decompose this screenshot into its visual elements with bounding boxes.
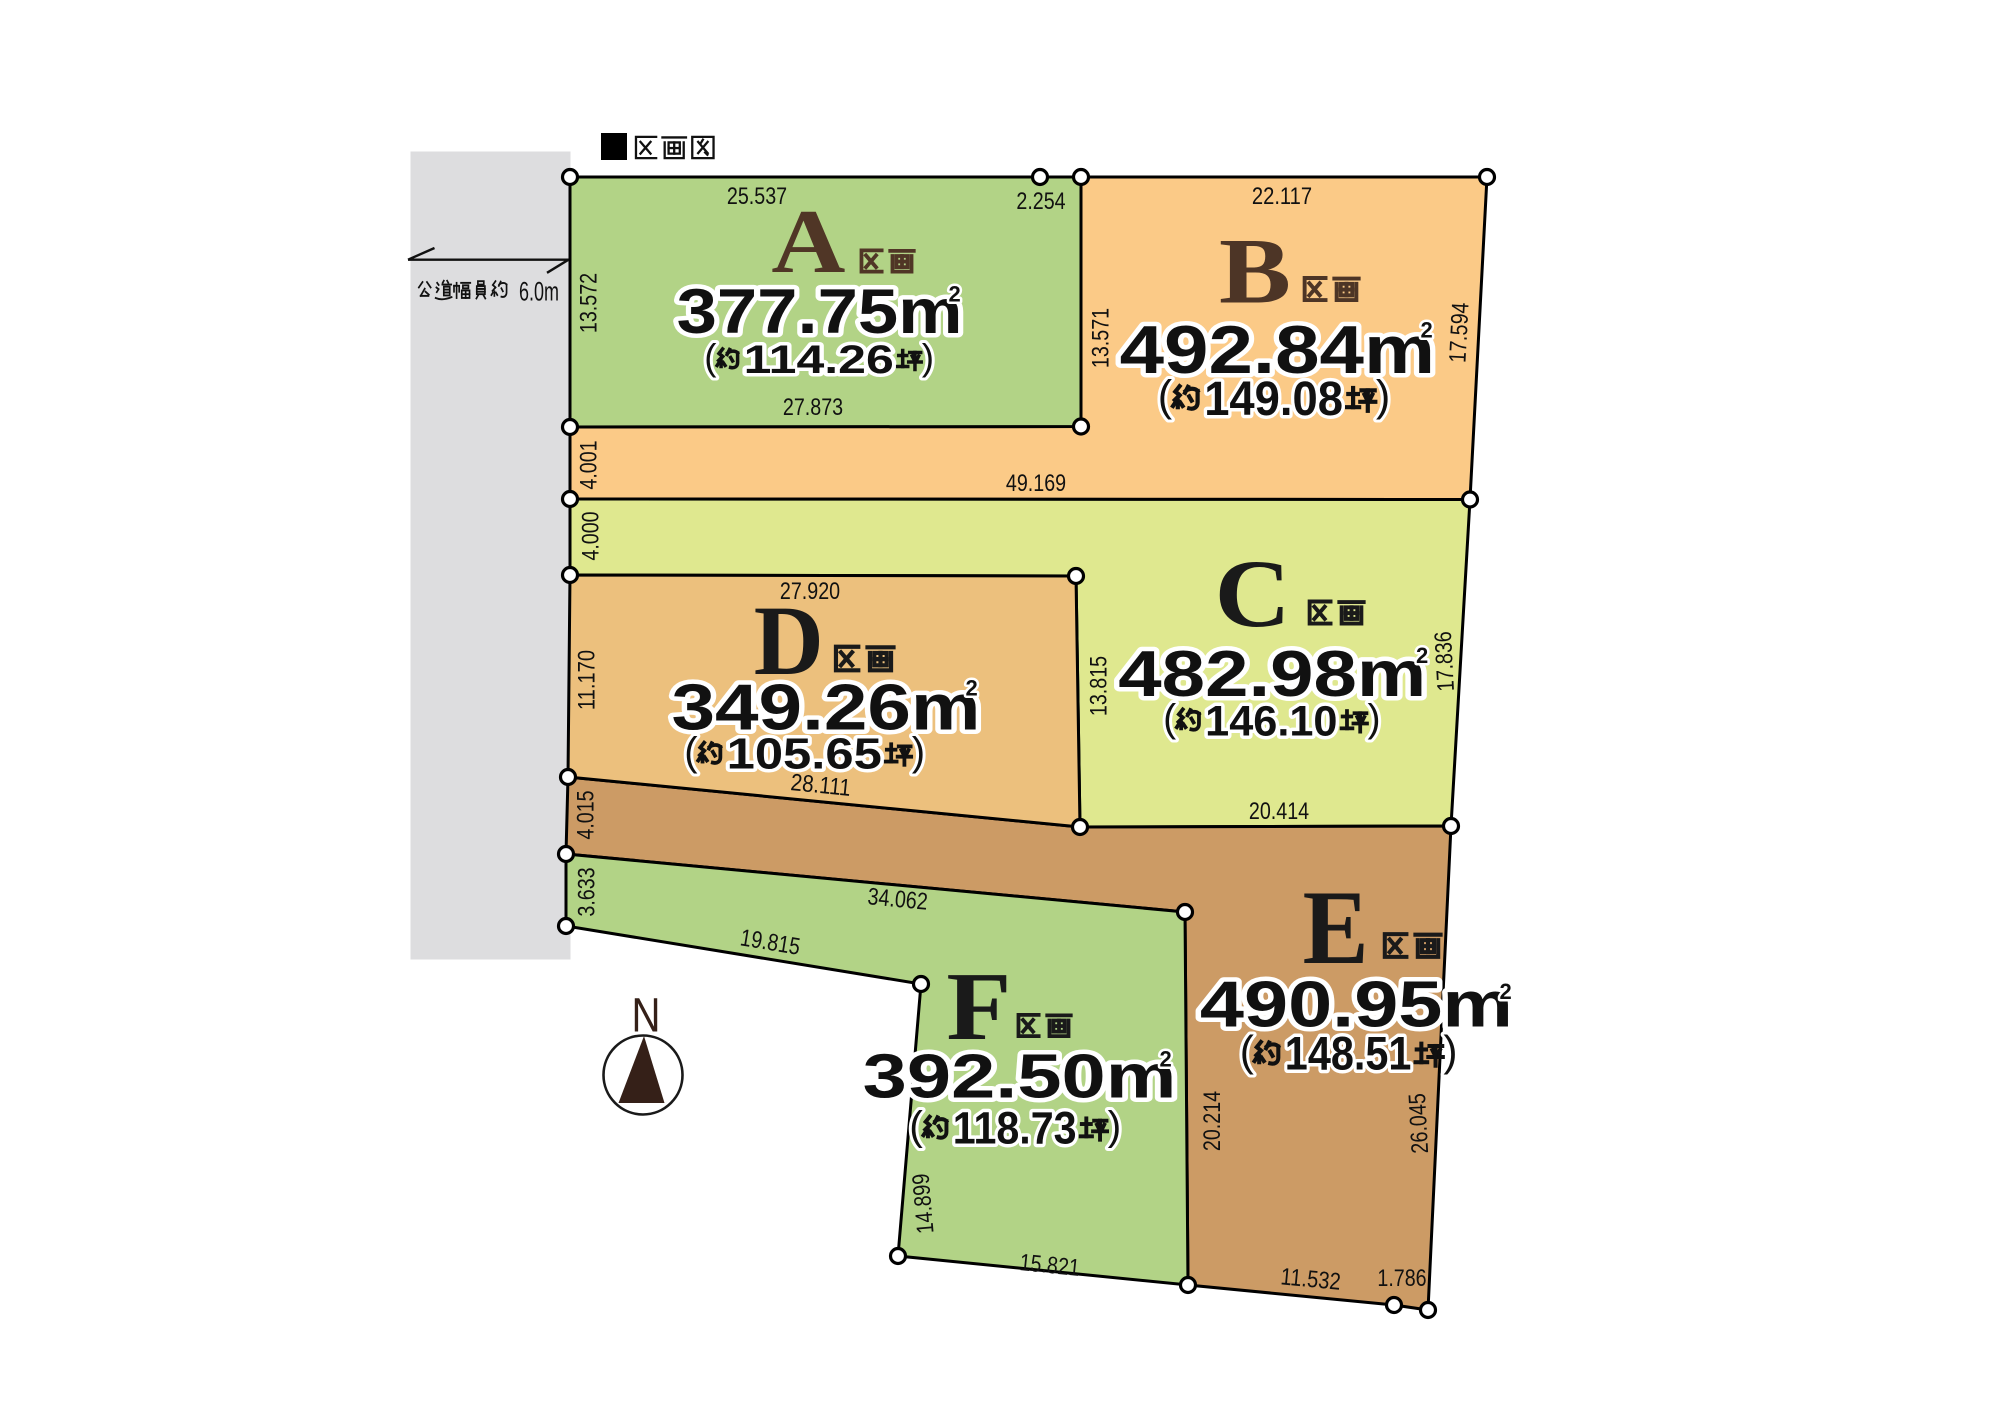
svg-text:105.65: 105.65 xyxy=(727,730,882,779)
svg-text:4.000: 4.000 xyxy=(578,511,605,560)
svg-text:(: ( xyxy=(704,337,717,378)
svg-text:20.414: 20.414 xyxy=(1249,798,1309,825)
svg-text:13.815: 13.815 xyxy=(1086,656,1113,716)
svg-text:B: B xyxy=(1219,221,1291,324)
svg-text:2: 2 xyxy=(966,676,978,701)
svg-text:2: 2 xyxy=(1421,318,1433,343)
svg-text:(: ( xyxy=(1240,1028,1254,1075)
svg-text:(: ( xyxy=(684,730,698,774)
svg-text:114.26: 114.26 xyxy=(744,338,894,382)
svg-text:(: ( xyxy=(909,1103,923,1149)
svg-text:377.75m: 377.75m xyxy=(677,277,963,347)
svg-text:34.062: 34.062 xyxy=(866,883,928,916)
svg-text:118.73: 118.73 xyxy=(953,1103,1077,1154)
svg-text:13.572: 13.572 xyxy=(576,273,603,333)
svg-text:3.633: 3.633 xyxy=(574,867,601,916)
svg-text:): ) xyxy=(1376,373,1390,421)
svg-text:15.821: 15.821 xyxy=(1018,1249,1081,1282)
svg-text:17.594: 17.594 xyxy=(1444,302,1474,364)
svg-text:2: 2 xyxy=(1416,643,1428,668)
svg-text:2: 2 xyxy=(949,282,961,307)
svg-text:27.873: 27.873 xyxy=(783,394,843,421)
svg-text:146.10: 146.10 xyxy=(1205,697,1337,745)
svg-text:2: 2 xyxy=(1160,1047,1172,1072)
svg-text:4.015: 4.015 xyxy=(573,790,600,839)
svg-text:): ) xyxy=(922,337,934,378)
svg-text:C: C xyxy=(1215,540,1291,647)
svg-text:(: ( xyxy=(1158,373,1173,421)
svg-text:11.170: 11.170 xyxy=(574,650,601,710)
svg-text:): ) xyxy=(1108,1103,1122,1149)
svg-text:17.836: 17.836 xyxy=(1430,631,1460,693)
svg-text:2.254: 2.254 xyxy=(1016,188,1065,215)
svg-text:49.169: 49.169 xyxy=(1006,470,1066,497)
svg-text:): ) xyxy=(912,730,925,774)
svg-text:149.08: 149.08 xyxy=(1204,373,1343,426)
svg-text:20.214: 20.214 xyxy=(1199,1091,1226,1151)
svg-text:): ) xyxy=(1443,1028,1457,1075)
svg-text:): ) xyxy=(1368,697,1381,741)
svg-text:1.786: 1.786 xyxy=(1377,1265,1426,1292)
svg-text:(: ( xyxy=(1163,697,1176,741)
svg-text:13.571: 13.571 xyxy=(1088,308,1115,368)
svg-text:4.001: 4.001 xyxy=(576,440,603,489)
svg-text:14.899: 14.899 xyxy=(907,1172,939,1234)
svg-text:392.50m: 392.50m xyxy=(863,1043,1177,1112)
svg-text:6.0m: 6.0m xyxy=(519,277,559,307)
svg-text:22.117: 22.117 xyxy=(1252,183,1312,210)
svg-text:148.51: 148.51 xyxy=(1285,1027,1412,1080)
svg-text:11.532: 11.532 xyxy=(1279,1263,1341,1295)
svg-text:2: 2 xyxy=(1500,979,1512,1004)
svg-text:26.045: 26.045 xyxy=(1404,1093,1434,1155)
